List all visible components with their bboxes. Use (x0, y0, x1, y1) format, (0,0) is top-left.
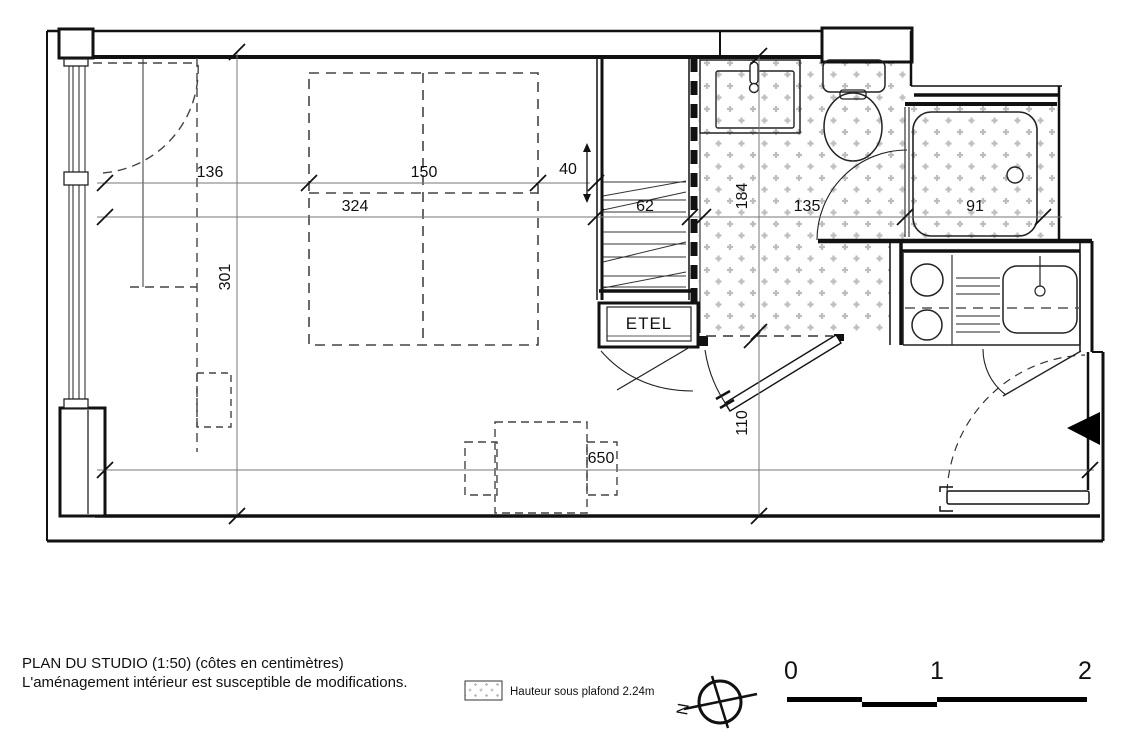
window-left (64, 59, 88, 408)
scale-segment-2 (862, 702, 937, 707)
scale-segment-3 (937, 697, 1087, 702)
title-line1: PLAN DU STUDIO (1:50) (côtes en centimèt… (22, 655, 344, 672)
compass: N (674, 676, 757, 728)
walls (47, 28, 1103, 541)
bathroom-door (705, 335, 841, 411)
kitchen-sink (1003, 256, 1077, 333)
scale-tick-0: 0 (784, 657, 798, 685)
scale-bar: 0 1 2 (784, 657, 1092, 707)
etel-label: ETEL (626, 314, 673, 333)
etel-cabinet: ETEL (599, 303, 698, 347)
table-and-chairs (465, 422, 617, 513)
kitchen (903, 253, 1080, 345)
drainer-lines (956, 278, 1000, 332)
dim-650: 650 (588, 450, 615, 467)
dim-301: 301 (217, 264, 234, 291)
legend-label: Hauteur sous plafond 2.24m (510, 686, 654, 698)
dim-110: 110 (734, 410, 751, 436)
hob-burners (911, 264, 943, 340)
scale-segment-1 (787, 697, 862, 702)
dim-324: 324 (342, 198, 369, 215)
etel-door (601, 347, 693, 391)
legend: Hauteur sous plafond 2.24m (465, 681, 654, 700)
scale-tick-1: 1 (930, 657, 944, 685)
dim-62: 62 (636, 198, 654, 215)
dimension-arrow-40 (583, 143, 591, 203)
dim-184: 184 (734, 183, 751, 210)
plan-title: PLAN DU STUDIO (1:50) (côtes en centimèt… (22, 655, 408, 691)
floor-plan-page: ETEL (0, 0, 1146, 735)
north-label: N (674, 702, 693, 716)
scale-tick-2: 2 (1078, 657, 1092, 685)
wardrobe-left (93, 58, 231, 452)
entry-door (940, 349, 1089, 511)
dim-91: 91 (966, 198, 984, 215)
floor-plan-drawing: ETEL (0, 0, 1146, 735)
dim-150: 150 (411, 164, 438, 181)
dim-40: 40 (559, 161, 577, 178)
entrance-arrow (1067, 412, 1100, 445)
title-line2: L'aménagement intérieur est susceptible … (22, 674, 408, 691)
dim-136: 136 (197, 164, 224, 181)
legend-swatch (465, 681, 502, 700)
doors (601, 335, 1089, 511)
furniture-dashed (93, 58, 617, 513)
dim-135: 135 (794, 198, 821, 215)
